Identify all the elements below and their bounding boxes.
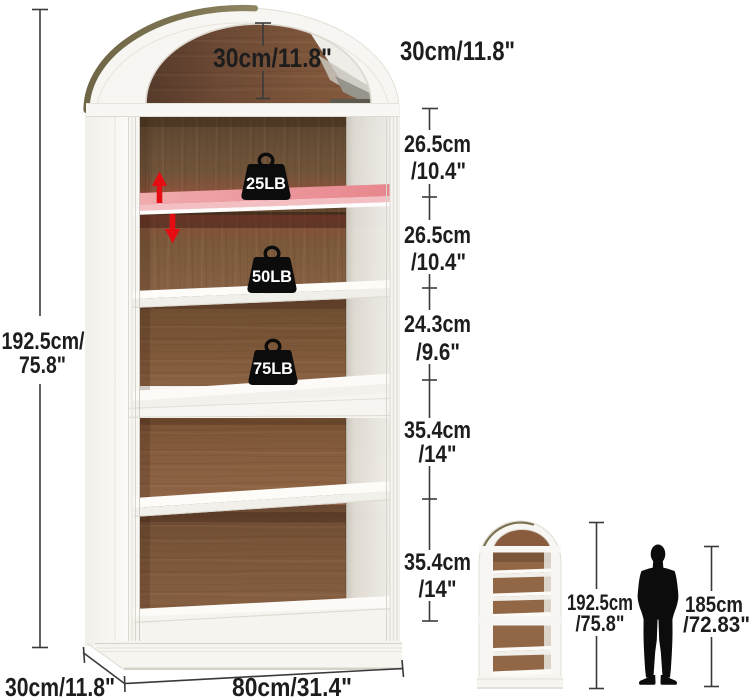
svg-text:25LB: 25LB [246,175,286,193]
svg-text:/14": /14" [419,576,457,603]
svg-text:/14": /14" [419,441,457,468]
svg-text:75.8": 75.8" [19,352,66,379]
svg-text:/72.83": /72.83" [683,612,750,637]
svg-text:26.5cm: 26.5cm [404,131,471,158]
svg-text:50LB: 50LB [252,268,292,286]
svg-text:30cm/11.8": 30cm/11.8" [400,36,515,66]
svg-text:35.4cm: 35.4cm [404,549,471,576]
svg-text:192.5cm/: 192.5cm/ [2,328,85,355]
svg-text:/10.4": /10.4" [411,249,466,276]
svg-text:/10.4": /10.4" [411,158,466,185]
svg-text:75LB: 75LB [253,360,293,378]
svg-text:/9.6": /9.6" [416,339,460,366]
svg-text:30cm/11.8": 30cm/11.8" [213,43,332,73]
svg-text:80cm/31.4": 80cm/31.4" [232,672,352,700]
svg-text:/75.8": /75.8" [576,611,625,636]
svg-text:24.3cm: 24.3cm [404,311,471,338]
svg-text:30cm/11.8": 30cm/11.8" [5,672,115,700]
svg-text:26.5cm: 26.5cm [404,222,471,249]
svg-text:35.4cm: 35.4cm [404,417,471,444]
